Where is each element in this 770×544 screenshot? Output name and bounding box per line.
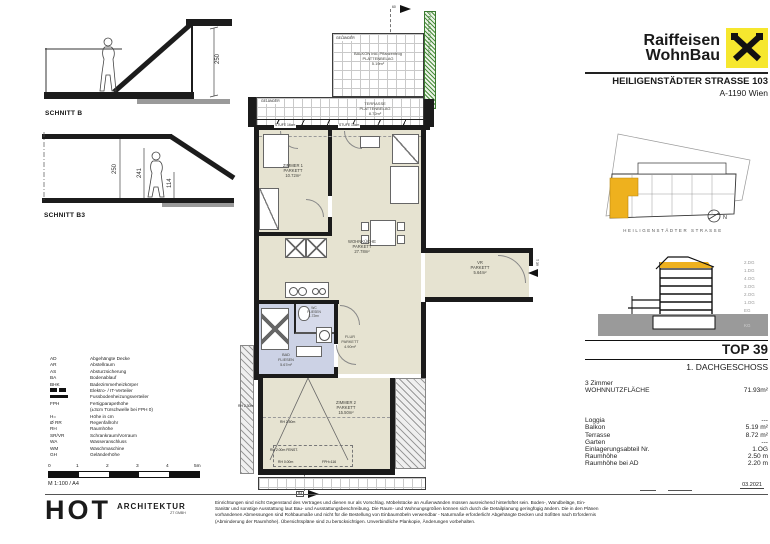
unit-rooms: 3 Zimmer — [585, 380, 768, 387]
chair — [397, 222, 405, 231]
header-divider — [585, 72, 768, 74]
site-plan: N — [598, 130, 758, 226]
detail-row: Garten--- — [585, 439, 768, 446]
detail-row: Terrasse8.72 m² — [585, 432, 768, 439]
zimmer1-label: ZIMMER 1PARKETT10.72m² — [268, 163, 318, 178]
interior-wall — [328, 130, 332, 196]
section-flag-b-icon — [400, 5, 411, 13]
chair — [397, 235, 405, 244]
unit-info: TOP 39 1. DACHGESCHOSS 3 Zimmer WOHNNUTZ… — [585, 340, 768, 468]
project-street: HEILIGENSTÄDTER STRASSE 103 — [585, 76, 768, 87]
unit-top-number: TOP 39 — [585, 341, 768, 359]
flur-label: FLURPARKETT4.90m² — [330, 335, 370, 350]
scale-label: M 1:100 / A4 — [48, 481, 218, 487]
gelaender-label: GELÄNDER — [335, 37, 356, 41]
architect-sub: ZT GMBH — [117, 511, 186, 515]
bed-furniture — [390, 166, 419, 204]
exterior-wall — [258, 469, 395, 475]
footer-divider — [45, 494, 768, 495]
architect-logo: HOT ARCHITEKTUR ZT GMBH — [45, 498, 186, 522]
neighbor-area — [395, 378, 426, 469]
entry-top-label: T 39 — [534, 259, 538, 266]
exterior-wall — [425, 297, 533, 302]
fph-annotation: FPH=116 — [322, 461, 336, 465]
wardrobe-furniture — [259, 188, 279, 230]
rh-annotation: RH 0.00m — [278, 461, 293, 465]
lower-roof-strip — [258, 477, 426, 490]
detail-row: Balkon5.19 m² — [585, 424, 768, 431]
chair — [361, 222, 369, 231]
floor-plan: 60 PFLANZENTROG GELÄNDER GELÄNDER BALKON… — [240, 5, 540, 497]
floor-label: KG — [744, 323, 751, 328]
shower — [261, 308, 289, 350]
table-furniture — [360, 136, 380, 148]
floor-label: EG — [744, 308, 751, 313]
scale-bar: 0 1 2 3 4 5m M 1:100 / A4 — [48, 464, 218, 487]
closet-furniture — [392, 134, 419, 164]
detail-row: Loggia--- — [585, 417, 768, 424]
brand-logo: Raiffeisen WohnBau — [585, 28, 768, 68]
schnitt-b3-drawing: 250 241 114 — [42, 126, 237, 212]
schnitt-b3-dim-241: 241 — [137, 167, 143, 178]
rh-annotation: RH 2.30m — [238, 405, 253, 409]
legend: ADAbgehängte Decke ARAbstellraum ASAbstu… — [50, 356, 225, 459]
architect-field: ARCHITEKTUR — [117, 502, 186, 511]
floor-label: 4.OG — [744, 276, 755, 281]
floor-label: 2.OG — [744, 292, 755, 297]
north-label: N — [723, 215, 727, 221]
building-section: 2.DG 1.DG 4.OG 3.OG 2.OG 1.OG EG KG — [598, 252, 768, 338]
floor-label: 2.DG — [744, 260, 755, 265]
kitchen-cabinet — [285, 238, 306, 258]
exterior-wall — [421, 302, 426, 380]
floor-label: 1.DG — [744, 268, 755, 273]
stufe-label: STUFE 16cm — [274, 124, 296, 128]
signature-line — [640, 490, 656, 491]
unit-floor: 1. DACHGESCHOSS — [585, 360, 768, 372]
legend-row: GHGeländerhöhe — [50, 452, 225, 458]
floor-label: 1.OG — [744, 300, 755, 305]
entry-marker-icon — [528, 269, 538, 277]
schnitt-b-label: SCHNITT B — [45, 110, 82, 117]
detail-row: Einlagerungsabteil Nr.1.OG — [585, 446, 768, 453]
scale-bar-segments — [48, 471, 200, 478]
detail-row: WOHNNUTZFLÄCHE71.93m² — [585, 387, 768, 394]
signature-line — [668, 490, 692, 491]
vr-label: VRPARKETT5.64m² — [450, 260, 510, 275]
interior-wall — [259, 232, 332, 236]
person-figure — [148, 161, 164, 197]
neighbor-area — [240, 345, 254, 474]
pflanzentrog-label: PFLANZENTROG — [427, 12, 432, 56]
person-figure — [100, 47, 116, 91]
brand-line1: Raiffeisen — [644, 33, 720, 48]
balcony-label: BALKON inkl. PflanzentrogPLATTENBELAG5.1… — [340, 51, 416, 66]
rh-annotation: RH 2.50m — [280, 421, 295, 425]
kitchen-cabinet — [306, 238, 327, 258]
schnitt-b3-label: SCHNITT B3 — [44, 212, 85, 219]
architect-name: HOT — [45, 498, 111, 522]
terrace-label: TERRASSEPLATTENBELAG8.72m² — [342, 101, 408, 116]
schnitt-b-drawing: 250 — [42, 8, 232, 108]
brand-line2: WohnBau — [644, 48, 720, 63]
wc-label: WCFLIESEN1.72m² — [292, 307, 336, 318]
exterior-wall — [421, 125, 426, 253]
schnitt-b3-dim-114: 114 — [167, 178, 173, 188]
bad-label: BADFLIESEN5.67m² — [264, 353, 308, 368]
disclaimer: Einrichtungen sind nicht Gegenstand des … — [215, 500, 768, 525]
zimmer2-label: ZIMMER 2PARKETT15.50m² — [318, 400, 374, 415]
gelaender-label: GELÄNDER — [260, 100, 281, 104]
project-city: A-1190 Wien — [585, 88, 768, 98]
street-caption: HEILIGENSTÄDTER STRASSE — [598, 228, 748, 233]
detail-row: Raumhöhe2.50 m — [585, 453, 768, 460]
plan-date: 03.2021 — [740, 482, 764, 489]
rh-annotation: RH 2.00m FENST. — [270, 449, 298, 453]
raiffeisen-cross-icon — [726, 28, 768, 68]
kitchen-counter — [285, 282, 329, 298]
schnitt-b3-dim-250: 250 — [112, 163, 118, 174]
stufe-label: STUFE 16cm — [338, 124, 360, 128]
floor-label: 3.OG — [744, 284, 755, 289]
detail-row: Raumhöhe bei AD2.20 m — [585, 460, 768, 467]
wohnkueche-label: WOHNKÜCHEPARKETT27.78m² — [332, 239, 392, 254]
schnitt-b-dim: 250 — [215, 53, 221, 64]
roof-slope-line — [263, 417, 390, 418]
dim-60-label: 60 — [392, 6, 396, 10]
door-jamb — [529, 248, 533, 266]
pflanzentrog-strip: PFLANZENTROG — [424, 11, 436, 109]
